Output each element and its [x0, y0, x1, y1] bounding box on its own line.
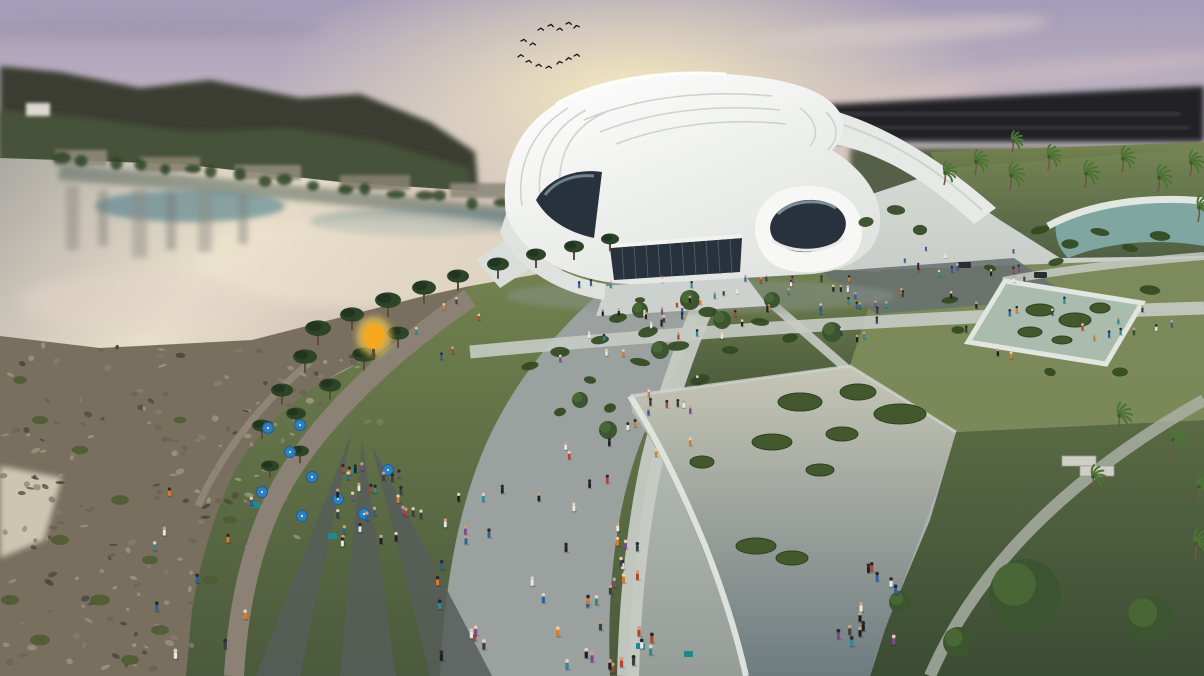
- person-body: [791, 278, 793, 283]
- person-shadow: [650, 328, 654, 329]
- person-head: [699, 298, 702, 301]
- reflection-streak: [66, 186, 79, 250]
- person-shadow: [621, 569, 626, 571]
- person-body: [661, 278, 663, 283]
- person-head: [379, 535, 382, 538]
- person-head: [153, 541, 156, 544]
- person-head: [900, 288, 903, 291]
- person-shadow: [944, 258, 948, 259]
- person-shadow: [848, 634, 854, 636]
- person-head: [590, 279, 592, 281]
- person-shadow: [661, 282, 665, 283]
- person-body: [155, 605, 158, 612]
- person-body: [634, 422, 637, 428]
- round-tree: [651, 341, 669, 359]
- person-body: [925, 247, 927, 251]
- person-body: [488, 531, 491, 537]
- round-tree: [713, 311, 731, 329]
- person-body: [661, 309, 663, 314]
- person-shadow: [598, 630, 604, 632]
- grass-tuft: [72, 446, 88, 455]
- person-head: [559, 355, 562, 358]
- person-body: [616, 540, 619, 546]
- person-body: [696, 331, 698, 336]
- person-body: [1012, 269, 1014, 273]
- person-body: [832, 287, 834, 292]
- person-body: [736, 289, 738, 294]
- person-head: [396, 494, 399, 497]
- person-head: [412, 507, 415, 510]
- person-shadow: [162, 535, 167, 537]
- person-shadow: [744, 281, 748, 282]
- person-head: [636, 542, 639, 545]
- person-head: [348, 466, 351, 469]
- round-tree: [599, 421, 617, 439]
- person-head: [858, 612, 862, 616]
- person-shadow: [975, 308, 979, 309]
- person-body: [224, 642, 227, 649]
- person-shadow: [173, 658, 179, 660]
- person-shadow: [847, 303, 851, 304]
- umbrella: [297, 511, 308, 522]
- person-body: [837, 632, 840, 639]
- person-shadow: [990, 275, 994, 276]
- person-body: [689, 298, 691, 303]
- person-shadow: [568, 459, 573, 461]
- tree-canopy-light: [652, 342, 663, 353]
- person-head: [564, 442, 567, 445]
- umbrella: [295, 420, 306, 431]
- person-body: [840, 330, 842, 335]
- person-shadow: [369, 492, 374, 494]
- person-head: [848, 275, 850, 277]
- person-head: [944, 252, 946, 254]
- person-head: [819, 303, 822, 306]
- person-head: [892, 635, 896, 639]
- person-shadow: [556, 636, 562, 638]
- umbrella-top: [301, 515, 303, 517]
- person-head: [1010, 352, 1013, 355]
- person-head: [250, 497, 253, 500]
- person-shadow: [482, 649, 488, 651]
- bank-tree: [75, 155, 88, 167]
- person-body: [876, 575, 879, 582]
- person-head: [373, 507, 376, 510]
- person-body: [760, 279, 762, 284]
- person-body: [904, 258, 906, 262]
- person-shadow: [836, 638, 842, 640]
- person-body: [351, 495, 354, 501]
- person-shadow: [440, 359, 444, 360]
- person-shadow: [530, 585, 535, 587]
- person-head: [1023, 274, 1025, 276]
- person-head: [902, 290, 905, 293]
- person-head: [840, 328, 843, 331]
- person-shadow: [617, 315, 621, 316]
- grass-tuft: [174, 417, 186, 424]
- person-body: [556, 630, 559, 637]
- tree-canopy-light: [600, 422, 611, 433]
- person-head: [616, 537, 619, 540]
- person-head: [578, 281, 580, 283]
- person-shadow: [689, 445, 694, 447]
- person-shadow: [603, 341, 607, 342]
- person-head: [741, 319, 744, 322]
- bank-tree: [359, 183, 370, 195]
- person-body: [620, 660, 623, 667]
- person-head: [870, 562, 874, 566]
- person-head: [760, 277, 762, 279]
- person-body: [858, 630, 861, 637]
- reflection-streak: [132, 188, 147, 258]
- person-shadow: [820, 282, 824, 283]
- person-body: [848, 277, 850, 282]
- round-tree: [764, 292, 780, 308]
- person-head: [874, 300, 877, 303]
- person-head: [956, 263, 958, 265]
- person-body: [609, 588, 612, 595]
- person-shadow: [624, 548, 629, 550]
- person-body: [587, 598, 590, 605]
- person-body: [1063, 299, 1065, 304]
- person-body: [610, 283, 612, 288]
- person-shadow: [894, 594, 900, 596]
- palm-crown: [1189, 161, 1193, 165]
- pine-canopy-shade: [342, 308, 355, 317]
- person-body: [595, 598, 598, 605]
- person-body: [649, 648, 652, 655]
- person-body: [1013, 278, 1015, 283]
- person-head: [482, 639, 486, 643]
- person-shadow: [438, 609, 444, 611]
- person-head: [1119, 328, 1122, 331]
- person-shadow: [938, 276, 942, 277]
- grass-tuft: [13, 376, 27, 384]
- person-shadow: [354, 472, 359, 474]
- person-head: [990, 269, 992, 271]
- grass-island: [806, 464, 834, 476]
- person-body: [465, 538, 468, 544]
- person-body: [336, 512, 339, 518]
- person-head: [223, 639, 227, 643]
- person-body: [608, 662, 611, 669]
- grass-tuft: [142, 556, 158, 565]
- person-body: [370, 487, 373, 493]
- grass-island: [1018, 327, 1042, 337]
- umbrella: [285, 447, 296, 458]
- person-shadow: [647, 396, 651, 398]
- tree-canopy-light: [681, 291, 693, 303]
- person-body: [565, 662, 568, 669]
- person-head: [640, 639, 644, 643]
- reflection-streak: [166, 192, 176, 250]
- pine-canopy-shade: [295, 350, 308, 359]
- grass-tuft: [1, 595, 19, 605]
- bank-tree: [205, 165, 217, 178]
- sun-reflection: [20, 272, 260, 332]
- person-head: [734, 310, 737, 313]
- person-body: [380, 538, 383, 544]
- person-body: [616, 525, 619, 531]
- person-head: [950, 291, 953, 294]
- person-body: [620, 560, 623, 566]
- person-head: [397, 469, 400, 472]
- person-body: [440, 355, 442, 360]
- person-shadow: [903, 262, 907, 263]
- bank-tree: [110, 157, 122, 170]
- person-head: [867, 563, 871, 567]
- pine-canopy-shade: [288, 408, 299, 416]
- round-tree: [822, 322, 842, 342]
- person-shadow: [564, 551, 569, 553]
- person-shadow: [223, 648, 229, 650]
- person-shadow: [787, 294, 791, 295]
- person-shadow: [436, 585, 441, 587]
- person-body: [603, 336, 605, 341]
- person-shadow: [455, 303, 459, 304]
- person-shadow: [965, 332, 969, 333]
- person-head: [464, 525, 467, 528]
- tree-canopy-light: [714, 312, 725, 323]
- person-body: [531, 579, 534, 586]
- person-body: [415, 329, 417, 334]
- person-head: [655, 448, 658, 451]
- tree-canopy-light: [633, 303, 643, 313]
- person-head: [588, 479, 591, 482]
- person-shadow: [1081, 330, 1085, 331]
- person-body: [870, 565, 873, 571]
- person-head: [391, 473, 394, 476]
- person-body: [683, 403, 685, 408]
- person-shadow: [415, 334, 419, 335]
- person-body: [645, 314, 647, 319]
- person-body: [847, 299, 849, 304]
- person-head: [455, 297, 458, 300]
- reflection-streak: [98, 190, 108, 246]
- person-body: [1009, 311, 1011, 316]
- person-shadow: [1141, 312, 1145, 313]
- person-shadow: [357, 491, 362, 493]
- person-shadow: [858, 621, 864, 623]
- person-head: [595, 595, 599, 599]
- person-head: [564, 543, 567, 546]
- grass-tuft: [151, 625, 169, 635]
- person-shadow: [790, 286, 794, 287]
- person-head: [442, 303, 445, 306]
- person-body: [572, 505, 575, 511]
- person-shadow: [541, 602, 547, 604]
- car: [958, 262, 971, 268]
- person-shadow: [382, 480, 387, 482]
- person-shadow: [360, 470, 365, 472]
- person-shadow: [876, 313, 880, 314]
- person-body: [862, 624, 865, 631]
- teal-patch: [95, 190, 285, 222]
- person-shadow: [401, 514, 406, 516]
- person-body: [859, 605, 862, 612]
- person-body: [734, 312, 736, 317]
- person-body: [602, 311, 604, 316]
- person-shadow: [1010, 359, 1014, 360]
- person-body: [660, 322, 662, 327]
- person-shadow: [464, 534, 469, 536]
- person-head: [369, 484, 372, 487]
- person-head: [863, 332, 866, 335]
- person-body: [402, 509, 405, 515]
- person-shadow: [440, 569, 445, 571]
- person-shadow: [681, 312, 685, 313]
- palm-crown: [1009, 174, 1013, 178]
- person-body: [342, 467, 345, 473]
- person-shadow: [606, 483, 611, 485]
- person-head: [665, 400, 668, 403]
- person-shadow: [605, 356, 609, 357]
- person-body: [436, 579, 439, 586]
- person-shadow: [736, 293, 740, 294]
- person-body: [588, 334, 590, 339]
- person-shadow: [951, 272, 955, 273]
- person-body: [951, 268, 953, 272]
- tree-canopy-light: [765, 293, 775, 303]
- person-head: [624, 540, 627, 543]
- grass-island: [736, 538, 776, 554]
- person-shadow: [250, 505, 255, 507]
- person-shadow: [457, 501, 462, 503]
- person-head: [440, 352, 443, 355]
- person-shadow: [1093, 340, 1097, 341]
- person-body: [640, 642, 643, 649]
- person-head: [354, 464, 357, 467]
- person-shadow: [892, 644, 898, 646]
- person-body: [420, 512, 423, 518]
- person-head: [365, 512, 368, 515]
- person-head: [584, 648, 588, 652]
- person-shadow: [464, 544, 469, 546]
- palm-crown: [1084, 172, 1088, 176]
- person-body: [605, 351, 607, 356]
- person-shadow: [578, 287, 582, 288]
- person-body: [854, 294, 856, 299]
- person-shadow: [572, 511, 577, 513]
- tree-canopy-light: [573, 393, 583, 403]
- person-head: [938, 270, 940, 272]
- person-head: [358, 523, 361, 526]
- person-body: [336, 491, 339, 497]
- person-head: [373, 485, 376, 488]
- person-body: [766, 308, 768, 313]
- person-body: [714, 294, 716, 299]
- person-body: [398, 472, 401, 478]
- person-shadow: [867, 572, 872, 574]
- person-body: [1051, 311, 1053, 316]
- person-head: [457, 493, 460, 496]
- person-shadow: [411, 516, 416, 518]
- person-shadow: [640, 648, 646, 650]
- person-body: [1023, 277, 1025, 282]
- person-head: [1108, 330, 1111, 333]
- pine-canopy-shade: [602, 234, 612, 241]
- person-shadow: [586, 604, 592, 606]
- person-shadow: [676, 406, 680, 408]
- person-shadow: [451, 353, 455, 354]
- person-head: [634, 419, 637, 422]
- person-body: [689, 408, 691, 413]
- person-head: [620, 657, 624, 661]
- person-shadow: [858, 309, 862, 310]
- person-head: [401, 506, 404, 509]
- person-head: [650, 633, 654, 637]
- person-shadow: [379, 543, 384, 545]
- person-body: [470, 632, 473, 639]
- person-body: [606, 477, 609, 483]
- person-body: [613, 581, 616, 588]
- person-body: [174, 652, 177, 659]
- person-body: [443, 305, 445, 310]
- person-head: [1081, 323, 1084, 326]
- person-shadow: [594, 604, 600, 606]
- person-head: [682, 400, 685, 403]
- person-shadow: [819, 314, 823, 315]
- grass-island: [1090, 303, 1110, 313]
- person-shadow: [601, 315, 605, 316]
- person-shadow: [1155, 331, 1159, 332]
- person-head: [645, 312, 648, 315]
- person-body: [359, 526, 362, 532]
- person-head: [689, 296, 692, 299]
- person-body: [956, 265, 958, 269]
- person-body: [663, 317, 665, 322]
- person-head: [647, 389, 650, 392]
- person-shadow: [650, 642, 656, 644]
- person-body: [637, 629, 640, 636]
- round-tree: [989, 559, 1061, 631]
- person-head: [605, 349, 608, 352]
- person-shadow: [501, 493, 506, 495]
- person-shadow: [473, 640, 479, 642]
- person-body: [474, 629, 477, 636]
- person-shadow: [474, 635, 480, 637]
- person-shadow: [168, 496, 173, 498]
- person-head: [469, 628, 473, 632]
- person-body: [1108, 333, 1110, 338]
- person-shadow: [1017, 271, 1021, 272]
- person-body: [168, 490, 171, 496]
- umbrella-top: [299, 424, 301, 426]
- person-shadow: [677, 339, 681, 340]
- person-shadow: [819, 310, 823, 311]
- person-body: [681, 314, 683, 319]
- person-shadow: [155, 611, 161, 613]
- person-head: [647, 407, 650, 410]
- person-body: [354, 467, 357, 473]
- person-head: [820, 275, 822, 277]
- person-head: [482, 493, 485, 496]
- person-shadow: [682, 407, 686, 409]
- person-head: [663, 315, 666, 318]
- person-head: [951, 266, 953, 268]
- round-tree: [889, 591, 911, 613]
- person-head: [1018, 264, 1020, 266]
- person-head: [382, 472, 385, 475]
- grass-island: [1059, 313, 1091, 327]
- person-head: [226, 534, 229, 537]
- grass-island: [776, 551, 808, 565]
- person-shadow: [195, 583, 200, 585]
- person-body: [1010, 354, 1012, 359]
- person-shadow: [341, 472, 346, 474]
- person-shadow: [477, 320, 481, 321]
- person-head: [997, 349, 1000, 352]
